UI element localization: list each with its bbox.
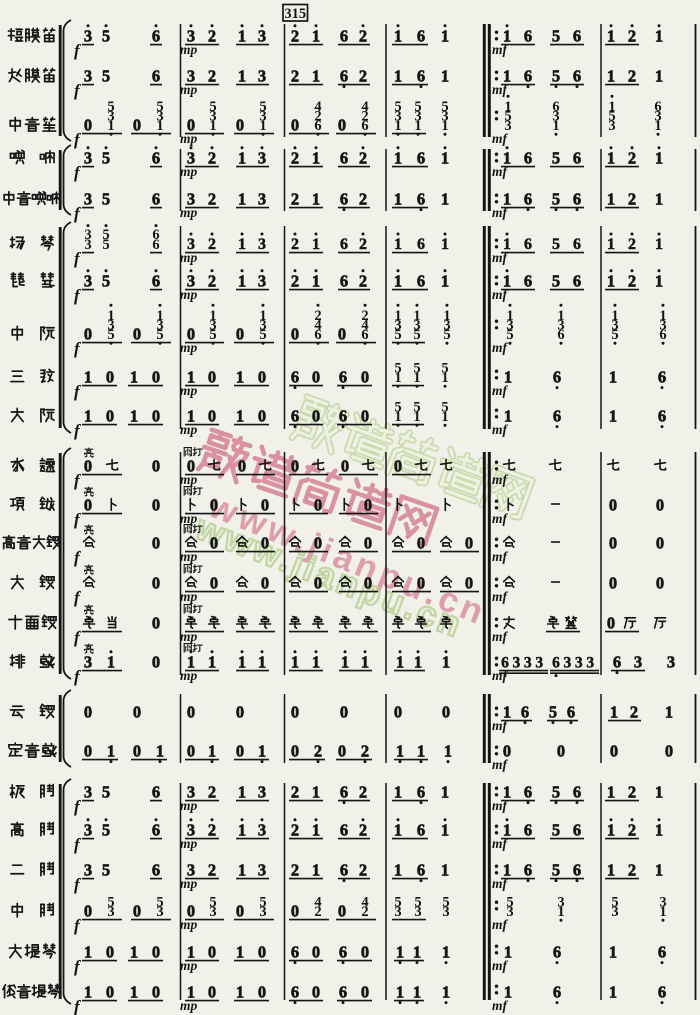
svg-text:1: 1 xyxy=(441,861,449,880)
svg-text:6: 6 xyxy=(573,783,581,802)
svg-text:2: 2 xyxy=(628,272,636,291)
svg-text:0: 0 xyxy=(364,574,372,593)
svg-text:1: 1 xyxy=(341,653,349,672)
svg-text:6: 6 xyxy=(557,327,564,343)
svg-text:3: 3 xyxy=(258,783,266,802)
svg-text:1: 1 xyxy=(607,67,615,86)
svg-text:1: 1 xyxy=(413,370,420,386)
svg-text:0: 0 xyxy=(291,116,299,135)
svg-text:3: 3 xyxy=(414,904,421,920)
svg-text:1: 1 xyxy=(655,27,663,46)
svg-text:mf: mf xyxy=(492,511,509,526)
svg-text:1: 1 xyxy=(394,861,402,880)
svg-text:0: 0 xyxy=(261,574,269,593)
svg-text:mp: mp xyxy=(180,42,198,57)
svg-text:6: 6 xyxy=(524,861,532,880)
svg-text:6: 6 xyxy=(573,272,581,291)
svg-text:0: 0 xyxy=(361,407,369,426)
svg-text:1: 1 xyxy=(238,653,246,672)
svg-text:3: 3 xyxy=(258,67,266,86)
svg-text:1: 1 xyxy=(659,904,666,920)
svg-text:0: 0 xyxy=(261,496,269,515)
svg-text:1: 1 xyxy=(441,236,449,253)
svg-text:6: 6 xyxy=(573,190,581,209)
svg-text:1: 1 xyxy=(394,409,401,425)
svg-text:0: 0 xyxy=(364,534,372,553)
svg-text:3: 3 xyxy=(209,904,216,920)
svg-text:f: f xyxy=(74,81,82,100)
svg-text:1: 1 xyxy=(396,983,404,1002)
svg-text:0: 0 xyxy=(236,325,244,344)
svg-text:0: 0 xyxy=(656,574,664,593)
svg-text:6: 6 xyxy=(314,327,321,343)
svg-text:6: 6 xyxy=(417,783,425,802)
svg-text:5: 5 xyxy=(156,327,163,343)
svg-text:f: f xyxy=(74,875,82,894)
svg-text:mf: mf xyxy=(492,549,509,564)
svg-text:6: 6 xyxy=(524,27,532,46)
svg-text:3: 3 xyxy=(634,653,642,672)
svg-text:5: 5 xyxy=(611,327,618,343)
svg-text:1: 1 xyxy=(442,983,450,1002)
svg-text:6: 6 xyxy=(152,190,160,209)
svg-text:0: 0 xyxy=(314,574,322,593)
svg-text:1: 1 xyxy=(130,983,138,1002)
svg-text:0: 0 xyxy=(152,574,160,593)
svg-text:6: 6 xyxy=(417,861,425,880)
svg-text:0: 0 xyxy=(361,943,369,962)
svg-text:mp: mp xyxy=(180,287,198,302)
svg-text:6: 6 xyxy=(417,236,425,253)
svg-text:1: 1 xyxy=(396,653,404,672)
svg-text:2: 2 xyxy=(628,236,636,253)
svg-text:0: 0 xyxy=(312,983,320,1002)
svg-text:mp: mp xyxy=(180,383,198,398)
svg-text:0: 0 xyxy=(208,407,216,426)
svg-text:0: 0 xyxy=(417,574,425,593)
svg-text:0: 0 xyxy=(609,574,617,593)
svg-text:3: 3 xyxy=(84,149,92,168)
svg-text:1: 1 xyxy=(130,368,138,387)
svg-text:6: 6 xyxy=(291,368,299,387)
svg-text:0: 0 xyxy=(291,902,299,921)
svg-text:2: 2 xyxy=(291,27,299,46)
svg-text:0: 0 xyxy=(84,457,92,476)
svg-text:mf: mf xyxy=(492,757,509,772)
svg-text:0: 0 xyxy=(258,943,266,962)
svg-text:1: 1 xyxy=(552,118,559,134)
svg-text:f: f xyxy=(74,667,82,686)
svg-text:3: 3 xyxy=(84,237,91,253)
svg-text:2: 2 xyxy=(628,821,636,840)
svg-text:5: 5 xyxy=(552,821,560,840)
svg-text:0: 0 xyxy=(208,368,216,387)
svg-text:2: 2 xyxy=(359,149,367,168)
svg-text:2: 2 xyxy=(314,904,321,920)
svg-text:f: f xyxy=(74,510,82,529)
svg-text:3: 3 xyxy=(84,190,92,209)
svg-text:6: 6 xyxy=(340,236,348,253)
svg-text:2: 2 xyxy=(359,861,367,880)
svg-text:0: 0 xyxy=(656,496,664,515)
svg-text:1: 1 xyxy=(312,190,320,209)
svg-text:6: 6 xyxy=(152,821,160,840)
svg-text:0: 0 xyxy=(338,325,346,344)
svg-text:0: 0 xyxy=(361,368,369,387)
svg-text:6: 6 xyxy=(658,943,666,962)
svg-text:0: 0 xyxy=(152,614,160,633)
svg-text:1: 1 xyxy=(236,943,244,962)
svg-text:0: 0 xyxy=(84,496,92,515)
svg-text:1: 1 xyxy=(84,407,92,426)
svg-text:mf: mf xyxy=(492,718,509,733)
svg-text:2: 2 xyxy=(361,904,368,920)
svg-text:1: 1 xyxy=(130,407,138,426)
svg-text:1: 1 xyxy=(84,943,92,962)
svg-text:1: 1 xyxy=(396,943,404,962)
svg-text:mp: mp xyxy=(180,250,198,265)
svg-text:5: 5 xyxy=(102,237,109,253)
svg-text:6: 6 xyxy=(417,67,425,86)
svg-text:1: 1 xyxy=(609,407,617,426)
svg-text:3: 3 xyxy=(535,655,543,672)
svg-text:2: 2 xyxy=(628,27,636,46)
svg-text:1: 1 xyxy=(607,190,615,209)
svg-text:1: 1 xyxy=(238,272,246,291)
svg-text:1: 1 xyxy=(312,272,320,291)
svg-text:0: 0 xyxy=(656,534,664,553)
svg-text:1: 1 xyxy=(655,272,663,291)
svg-text:6: 6 xyxy=(417,821,425,840)
svg-text:1: 1 xyxy=(107,742,115,761)
svg-text:mf: mf xyxy=(492,958,509,973)
svg-text:3: 3 xyxy=(258,27,266,46)
svg-text:f: f xyxy=(74,163,82,182)
svg-text:1: 1 xyxy=(441,190,449,209)
svg-text:5: 5 xyxy=(552,27,560,46)
svg-text:1: 1 xyxy=(84,983,92,1002)
svg-text:1: 1 xyxy=(609,368,617,387)
svg-text:6: 6 xyxy=(339,368,347,387)
svg-text:0: 0 xyxy=(442,703,450,722)
svg-text:1: 1 xyxy=(291,653,299,672)
svg-text:1: 1 xyxy=(441,67,449,86)
svg-text:3: 3 xyxy=(506,904,513,920)
svg-text:0: 0 xyxy=(133,902,141,921)
svg-text:2: 2 xyxy=(291,821,299,840)
svg-text:0: 0 xyxy=(208,983,216,1002)
svg-text:3: 3 xyxy=(611,904,618,920)
svg-text:0: 0 xyxy=(609,534,617,553)
svg-text:6: 6 xyxy=(524,272,532,291)
svg-text:mf: mf xyxy=(492,917,509,932)
svg-text:1: 1 xyxy=(312,67,320,86)
svg-text:6: 6 xyxy=(524,67,532,86)
svg-text:mp: mp xyxy=(180,422,198,437)
svg-text:1: 1 xyxy=(413,409,420,425)
svg-text:1: 1 xyxy=(414,118,421,134)
svg-text:2: 2 xyxy=(291,190,299,209)
svg-text:0: 0 xyxy=(210,534,218,553)
svg-text:0: 0 xyxy=(208,943,216,962)
svg-text:1: 1 xyxy=(238,190,246,209)
svg-text:2: 2 xyxy=(208,272,216,291)
svg-text:3: 3 xyxy=(564,655,572,672)
svg-text:6: 6 xyxy=(340,149,348,168)
svg-text:1: 1 xyxy=(394,149,402,168)
svg-text:f: f xyxy=(74,130,82,149)
svg-text:2: 2 xyxy=(291,236,299,253)
svg-text:0: 0 xyxy=(236,116,244,135)
svg-text:1: 1 xyxy=(107,118,114,134)
svg-text:0: 0 xyxy=(152,653,160,672)
svg-text:1: 1 xyxy=(209,118,216,134)
svg-text:6: 6 xyxy=(553,407,561,426)
svg-text:6: 6 xyxy=(573,821,581,840)
svg-text:f: f xyxy=(74,588,82,607)
svg-text:0: 0 xyxy=(187,742,195,761)
svg-text:0: 0 xyxy=(210,574,218,593)
svg-text:1: 1 xyxy=(655,821,663,840)
svg-text:3: 3 xyxy=(84,861,92,880)
svg-text:mf: mf xyxy=(492,836,509,851)
svg-text:3: 3 xyxy=(524,655,532,672)
svg-text:mp: mp xyxy=(180,82,198,97)
svg-text:0: 0 xyxy=(238,457,246,476)
svg-text:3: 3 xyxy=(259,904,266,920)
svg-text:1: 1 xyxy=(238,67,246,86)
svg-text:5: 5 xyxy=(552,190,560,209)
svg-text:6: 6 xyxy=(291,407,299,426)
svg-text:2: 2 xyxy=(291,861,299,880)
svg-text:0: 0 xyxy=(394,703,402,722)
svg-text:0: 0 xyxy=(291,325,299,344)
svg-text:2: 2 xyxy=(359,67,367,86)
svg-text:0: 0 xyxy=(312,368,320,387)
svg-text:f: f xyxy=(74,628,82,647)
svg-text:1: 1 xyxy=(655,67,663,86)
svg-text:0: 0 xyxy=(465,574,473,593)
svg-text:1: 1 xyxy=(238,236,246,253)
svg-text:0: 0 xyxy=(291,457,299,476)
svg-text:2: 2 xyxy=(208,27,216,46)
svg-text:1: 1 xyxy=(394,27,402,46)
svg-text:0: 0 xyxy=(84,742,92,761)
svg-text:0: 0 xyxy=(314,534,322,553)
svg-text:2: 2 xyxy=(359,821,367,840)
svg-text:6: 6 xyxy=(573,27,581,46)
svg-text:3: 3 xyxy=(156,904,163,920)
svg-text:1: 1 xyxy=(394,67,402,86)
svg-text:1: 1 xyxy=(312,27,320,46)
svg-text:0: 0 xyxy=(84,116,92,135)
svg-text:3: 3 xyxy=(84,653,92,672)
svg-text:mp: mp xyxy=(180,511,198,526)
svg-text:1: 1 xyxy=(607,783,615,802)
svg-text:mp: mp xyxy=(180,668,198,683)
svg-text:0: 0 xyxy=(394,457,402,476)
svg-text:6: 6 xyxy=(573,149,581,168)
svg-text:1: 1 xyxy=(238,861,246,880)
svg-text:6: 6 xyxy=(524,236,532,253)
svg-text:6: 6 xyxy=(417,272,425,291)
svg-text:0: 0 xyxy=(210,496,218,515)
svg-text:3: 3 xyxy=(394,904,401,920)
svg-text:315: 315 xyxy=(284,6,306,22)
svg-text:2: 2 xyxy=(291,272,299,291)
svg-text:6: 6 xyxy=(658,407,666,426)
svg-text:1: 1 xyxy=(413,943,421,962)
svg-text:1: 1 xyxy=(236,368,244,387)
svg-text:6: 6 xyxy=(417,149,425,168)
svg-text:1: 1 xyxy=(441,118,448,134)
svg-text:mf: mf xyxy=(492,131,509,146)
svg-text:5: 5 xyxy=(209,327,216,343)
svg-text:6: 6 xyxy=(567,703,575,722)
svg-text:1: 1 xyxy=(414,653,422,672)
svg-text:0: 0 xyxy=(133,703,141,722)
svg-text:0: 0 xyxy=(340,703,348,722)
svg-text:0: 0 xyxy=(361,983,369,1002)
svg-text:6: 6 xyxy=(553,983,561,1002)
svg-text:0: 0 xyxy=(133,742,141,761)
svg-text:2: 2 xyxy=(628,67,636,86)
svg-text:mf: mf xyxy=(492,250,509,265)
svg-text:5: 5 xyxy=(506,327,513,343)
svg-text:mf: mf xyxy=(492,668,509,683)
svg-text:6: 6 xyxy=(573,236,581,253)
svg-text:2: 2 xyxy=(208,861,216,880)
svg-text:mf: mf xyxy=(492,383,509,398)
svg-text:0: 0 xyxy=(84,325,92,344)
svg-text:0: 0 xyxy=(607,614,615,633)
svg-text:1: 1 xyxy=(413,983,421,1002)
svg-text:2: 2 xyxy=(359,236,367,253)
svg-text:1: 1 xyxy=(655,190,663,209)
svg-text:0: 0 xyxy=(187,703,195,722)
svg-text:6: 6 xyxy=(417,27,425,46)
svg-text:6: 6 xyxy=(152,783,160,802)
svg-text:6: 6 xyxy=(152,861,160,880)
svg-text:6: 6 xyxy=(339,407,347,426)
svg-text:1: 1 xyxy=(312,149,320,168)
svg-text:1: 1 xyxy=(238,783,246,802)
svg-text:0: 0 xyxy=(236,742,244,761)
svg-text:0: 0 xyxy=(338,116,346,135)
svg-text:6: 6 xyxy=(340,821,348,840)
svg-text:6: 6 xyxy=(361,118,368,134)
svg-text:mp: mp xyxy=(180,836,198,851)
svg-text:1: 1 xyxy=(609,943,617,962)
svg-text:5: 5 xyxy=(259,327,266,343)
svg-text:mf: mf xyxy=(492,998,509,1013)
svg-text:5: 5 xyxy=(107,327,114,343)
svg-text:2: 2 xyxy=(208,236,216,253)
svg-text:6: 6 xyxy=(524,190,532,209)
svg-text:0: 0 xyxy=(152,457,160,476)
svg-text:f: f xyxy=(74,41,82,60)
svg-text:3: 3 xyxy=(513,655,521,672)
svg-text:6: 6 xyxy=(659,327,666,343)
svg-text:2: 2 xyxy=(208,821,216,840)
svg-text:1: 1 xyxy=(607,821,615,840)
svg-text:mp: mp xyxy=(180,472,198,487)
svg-text:6: 6 xyxy=(340,27,348,46)
svg-text:6: 6 xyxy=(524,821,532,840)
svg-text:6: 6 xyxy=(340,783,348,802)
svg-text:1: 1 xyxy=(607,27,615,46)
svg-text:3: 3 xyxy=(258,190,266,209)
svg-text:1: 1 xyxy=(441,783,449,802)
svg-text:1: 1 xyxy=(441,821,449,840)
svg-text:f: f xyxy=(74,997,82,1015)
svg-text:mf: mf xyxy=(492,340,509,355)
svg-text:1: 1 xyxy=(312,653,320,672)
svg-text:3: 3 xyxy=(608,118,615,134)
svg-text:6: 6 xyxy=(340,67,348,86)
svg-text:mf: mf xyxy=(492,287,509,302)
svg-text:1: 1 xyxy=(312,236,320,253)
svg-text:5: 5 xyxy=(552,861,560,880)
svg-text:6: 6 xyxy=(152,272,160,291)
svg-text:2: 2 xyxy=(359,783,367,802)
svg-text:0: 0 xyxy=(133,325,141,344)
svg-text:6: 6 xyxy=(613,653,621,672)
svg-text:1: 1 xyxy=(394,272,402,291)
svg-text:1: 1 xyxy=(312,861,320,880)
svg-text:5: 5 xyxy=(552,67,560,86)
svg-text:mp: mp xyxy=(180,549,198,564)
svg-text:1: 1 xyxy=(441,409,448,425)
svg-text:2: 2 xyxy=(208,67,216,86)
svg-text:1: 1 xyxy=(156,118,163,134)
svg-text:f: f xyxy=(74,204,82,223)
svg-text:1: 1 xyxy=(441,272,449,291)
svg-text:mp: mp xyxy=(180,340,198,355)
svg-text:f: f xyxy=(74,835,82,854)
svg-text:6: 6 xyxy=(152,149,160,168)
svg-text:0: 0 xyxy=(557,742,565,761)
svg-text:mp: mp xyxy=(180,629,198,644)
svg-text:1: 1 xyxy=(312,783,320,802)
svg-text:1: 1 xyxy=(394,783,402,802)
svg-text:2: 2 xyxy=(291,783,299,802)
svg-text:6: 6 xyxy=(417,190,425,209)
svg-text:f: f xyxy=(74,339,82,358)
svg-text:2: 2 xyxy=(628,783,636,802)
svg-text:5: 5 xyxy=(552,149,560,168)
svg-text:3: 3 xyxy=(258,236,266,253)
svg-text:mp: mp xyxy=(180,917,198,932)
svg-text:2: 2 xyxy=(208,149,216,168)
svg-text:2: 2 xyxy=(208,783,216,802)
svg-text:0: 0 xyxy=(106,983,114,1002)
svg-text:0: 0 xyxy=(665,742,673,761)
svg-text:0: 0 xyxy=(133,116,141,135)
svg-text:0: 0 xyxy=(261,534,269,553)
svg-text:1: 1 xyxy=(208,653,216,672)
svg-text:0: 0 xyxy=(609,496,617,515)
svg-text:6: 6 xyxy=(658,368,666,387)
svg-text:1: 1 xyxy=(441,149,449,168)
svg-text:mf: mf xyxy=(492,82,509,97)
svg-text:1: 1 xyxy=(238,149,246,168)
svg-text:6: 6 xyxy=(152,237,159,253)
svg-text:mf: mf xyxy=(492,798,509,813)
svg-text:0: 0 xyxy=(291,703,299,722)
svg-text:f: f xyxy=(74,286,82,305)
svg-text:5: 5 xyxy=(102,67,110,86)
